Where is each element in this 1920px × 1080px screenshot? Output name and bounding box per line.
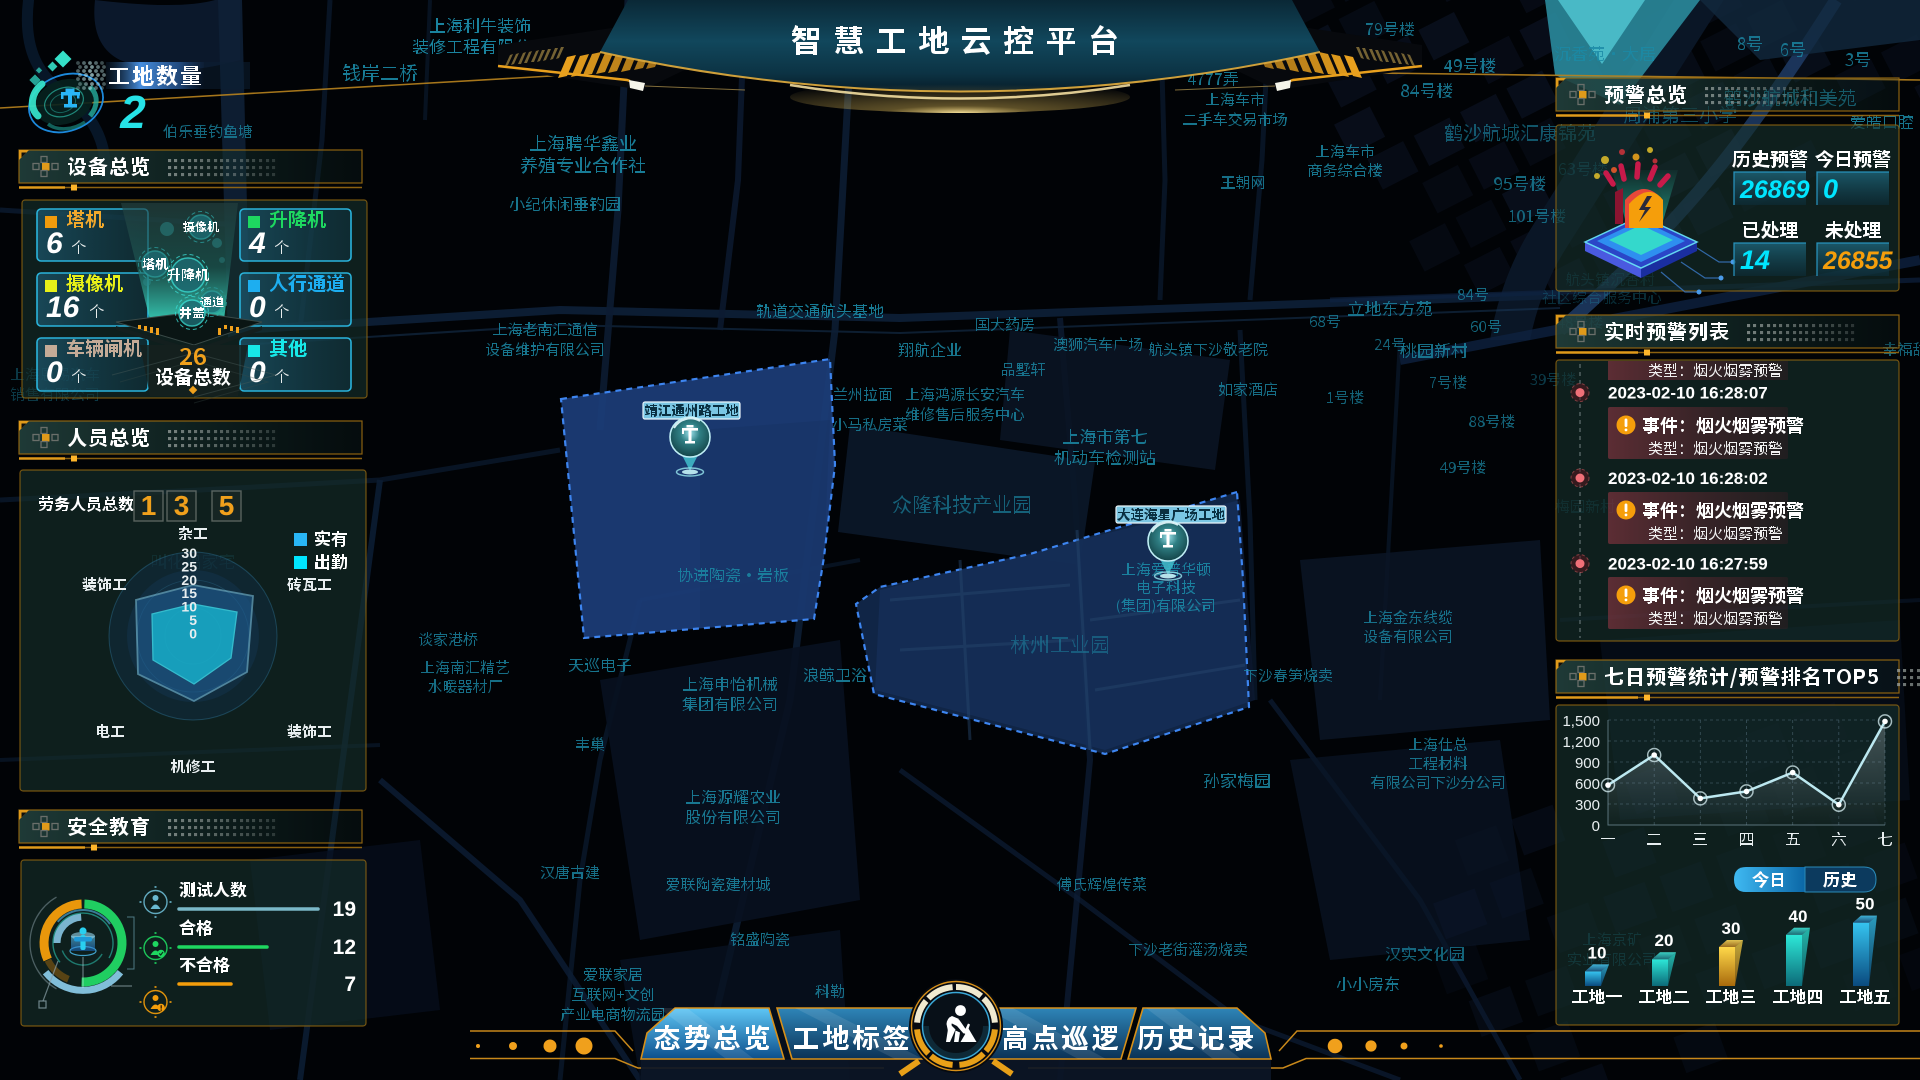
svg-text:0: 0 bbox=[249, 356, 266, 389]
svg-text:2023-02-10 16:27:59: 2023-02-10 16:27:59 bbox=[1608, 555, 1768, 574]
svg-text:300: 300 bbox=[1575, 797, 1600, 814]
svg-text:40: 40 bbox=[1789, 907, 1808, 926]
svg-text:1,500: 1,500 bbox=[1562, 713, 1600, 730]
svg-text:0: 0 bbox=[1592, 818, 1600, 835]
svg-text:3: 3 bbox=[174, 490, 190, 521]
svg-text:900: 900 bbox=[1575, 755, 1600, 772]
svg-text:6: 6 bbox=[46, 227, 63, 260]
svg-text:30: 30 bbox=[1722, 919, 1741, 938]
svg-text:2023-02-10 16:28:07: 2023-02-10 16:28:07 bbox=[1608, 384, 1768, 403]
svg-text:14: 14 bbox=[1740, 245, 1770, 275]
svg-text:26855: 26855 bbox=[1822, 247, 1894, 275]
svg-text:0: 0 bbox=[189, 625, 197, 641]
svg-text:12: 12 bbox=[333, 936, 356, 959]
svg-text:5: 5 bbox=[219, 490, 235, 521]
svg-text:7: 7 bbox=[344, 973, 356, 996]
svg-text:1: 1 bbox=[141, 490, 157, 521]
svg-text:19: 19 bbox=[333, 898, 356, 921]
svg-text:0: 0 bbox=[46, 356, 63, 389]
svg-text:16: 16 bbox=[46, 291, 80, 324]
svg-text:10: 10 bbox=[1588, 943, 1607, 962]
svg-text:50: 50 bbox=[1856, 895, 1875, 914]
svg-text:2023-02-10 16:28:02: 2023-02-10 16:28:02 bbox=[1608, 469, 1768, 488]
svg-text:4: 4 bbox=[248, 227, 266, 260]
svg-text:26869: 26869 bbox=[1739, 176, 1810, 204]
svg-text:2: 2 bbox=[119, 86, 146, 138]
svg-text:600: 600 bbox=[1575, 776, 1600, 793]
svg-text:0: 0 bbox=[1823, 174, 1838, 204]
svg-text:20: 20 bbox=[1655, 931, 1674, 950]
svg-text:1,200: 1,200 bbox=[1562, 734, 1600, 751]
svg-text:0: 0 bbox=[249, 291, 266, 324]
